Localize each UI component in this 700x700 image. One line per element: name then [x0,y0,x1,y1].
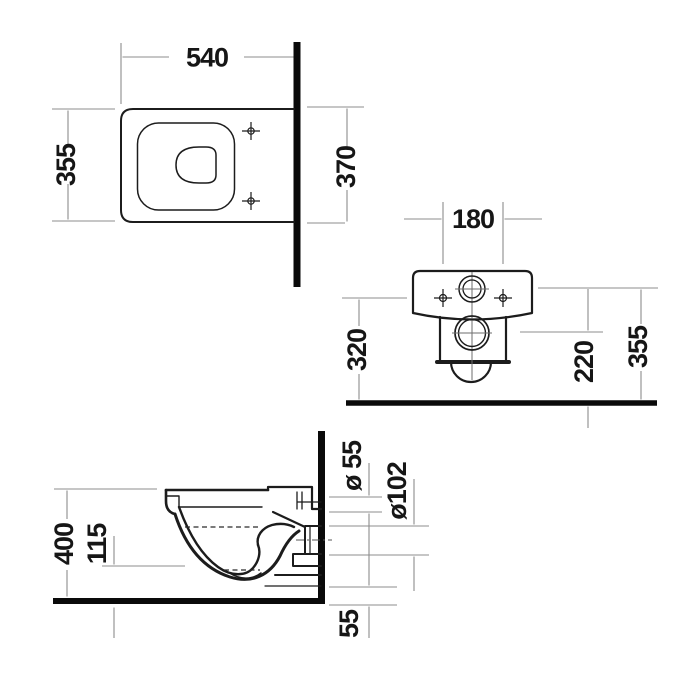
fixing-hole-marker-top [242,122,260,140]
outlet-pipe [296,526,332,554]
dim-180: 180 [404,202,542,264]
inlet-pipe [268,487,321,509]
mounting-hole-left [434,289,452,307]
plan-view: 540 355 370 [51,42,364,287]
front-face [166,490,175,514]
dim-outlet-diameter: ø102 [382,462,414,591]
rear-lower-block [440,317,506,362]
fixing-hole-marker-bottom [242,192,260,210]
side-view: 400 115 ø 55 ø102 55 [49,431,429,638]
technical-drawing-page: 540 355 370 [0,0,700,700]
dim-355-plan: 355 [51,109,115,221]
mounting-bracket [265,554,321,586]
dim-inlet-diameter: ø 55 [337,440,369,542]
dim-370-label: 370 [331,146,361,188]
mounting-hole-right [494,289,512,307]
drain-opening [176,147,216,183]
dim-540-label: 540 [186,43,228,73]
dim-115-label: 115 [82,523,112,565]
inlet-circle [455,276,489,302]
dim-540: 540 [121,43,294,105]
dim-55-bottom-label: 55 [334,609,364,638]
dim-115: 115 [82,523,185,638]
trap-dome [451,362,491,382]
rear-view: 180 320 220 355 [342,202,658,428]
dim-355-rear-label: 355 [623,325,653,368]
dim-220-label: 220 [569,341,599,383]
dim-320: 320 [342,298,407,400]
seat-rim [138,123,235,210]
toilet-side-profile [166,487,332,586]
dim-inlet-diameter-label: ø 55 [337,440,367,491]
dim-370: 370 [307,107,364,223]
dim-55-bottom: 55 [334,607,369,639]
dim-355-plan-label: 355 [51,143,81,186]
technical-drawing: 540 355 370 [0,0,700,700]
dim-outlet-diameter-label: ø102 [382,462,412,520]
inner-rim-line [166,496,262,507]
dim-320-label: 320 [342,329,372,371]
dim-180-label: 180 [452,204,494,234]
bowl-inner-wall [179,507,259,574]
dim-400-label: 400 [49,523,79,565]
